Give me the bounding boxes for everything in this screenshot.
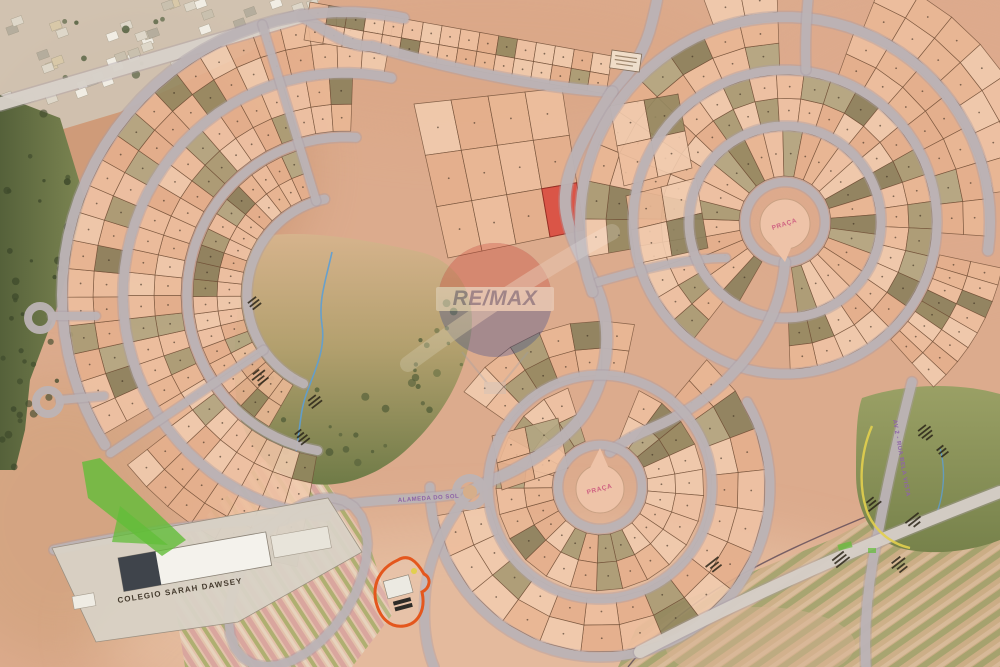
lot-number-mark (966, 317, 968, 319)
lot-number-mark (733, 266, 735, 268)
lot-number-mark (565, 366, 567, 368)
lot-number-mark (789, 86, 791, 88)
lot-number-mark (947, 187, 949, 189)
lot-number-mark (974, 217, 976, 219)
lot-number-mark (153, 111, 155, 113)
lot-number-mark (142, 167, 144, 169)
lot-number-mark (601, 637, 603, 639)
lot-number-mark (970, 182, 972, 184)
lot-number-mark (613, 362, 615, 364)
lot-number-mark (818, 161, 820, 163)
lot-number-mark (922, 90, 924, 92)
lot-number-mark (908, 166, 910, 168)
tree (421, 401, 425, 405)
lot-number-mark (279, 171, 281, 173)
tree (19, 348, 24, 353)
lot-number-mark (984, 272, 986, 274)
lot-number-mark (729, 563, 731, 565)
lot-number-mark (231, 213, 233, 215)
map-canvas: PRAÇA PRAÇA ALAMEDA DO SOL AV 2 - RUA BE… (0, 0, 1000, 667)
tree (382, 405, 390, 413)
lot-number-mark (430, 33, 432, 35)
tree (18, 418, 23, 423)
lot-number-mark (696, 118, 698, 120)
lot-number-mark (465, 58, 467, 60)
lot-number-mark (539, 595, 541, 597)
lot-number-mark (229, 302, 231, 304)
lot-number-mark (243, 50, 245, 52)
tree (11, 406, 17, 412)
lot-number-mark (241, 200, 243, 202)
lot-number-mark (890, 257, 892, 259)
tree (62, 19, 67, 24)
tree (7, 248, 13, 254)
tree (9, 316, 14, 321)
lot-number-mark (82, 255, 84, 257)
lot-number-mark (218, 61, 220, 63)
lot-number-mark (106, 308, 108, 310)
lot-number-mark (733, 415, 735, 417)
lot-number-mark (853, 223, 855, 225)
lot-number-mark (680, 199, 682, 201)
tree (1, 356, 6, 361)
lot-number-mark (173, 92, 175, 94)
lot-number-mark (562, 56, 564, 58)
lot-number-mark (895, 144, 897, 146)
lot-number-mark (233, 262, 235, 264)
lot-number-mark (851, 208, 853, 210)
lot-number-mark (88, 229, 90, 231)
lot-number-mark (300, 60, 302, 62)
lot-number-mark (221, 498, 223, 500)
lot-number-mark (938, 302, 940, 304)
lot-number-mark (732, 63, 734, 65)
lot-number-mark (750, 490, 752, 492)
tree (383, 444, 387, 448)
lot-number-mark (208, 408, 210, 410)
lot-number-mark (605, 547, 607, 549)
lot-number-mark (916, 190, 918, 192)
lot-number-mark (642, 442, 644, 444)
lot-number-mark (661, 594, 663, 596)
lot-number-mark (694, 287, 696, 289)
stamp-annotation-box (609, 50, 641, 72)
lot-number-mark (216, 350, 218, 352)
lot-number-mark (589, 547, 591, 549)
lot-number-mark (643, 408, 645, 410)
lot-number-mark (231, 84, 233, 86)
lot-number-mark (662, 279, 664, 281)
lot-number-mark (563, 633, 565, 635)
lot-number-mark (645, 527, 647, 529)
lot-number-mark (121, 380, 123, 382)
lot-number-mark (675, 301, 677, 303)
lot-number-mark (223, 365, 225, 367)
tree (55, 379, 59, 383)
lot-number-mark (561, 534, 563, 536)
lot-number-mark (764, 87, 766, 89)
lot-number-mark (204, 288, 206, 290)
lot-number-mark (607, 575, 609, 577)
lot-number-mark (760, 33, 762, 35)
lot-number-mark (243, 510, 245, 512)
lot-number-mark (206, 272, 208, 274)
lot-number-mark (928, 369, 930, 371)
lot-number-mark (251, 445, 253, 447)
tree (31, 362, 36, 367)
lot-number-mark (285, 127, 287, 129)
lot-number-mark (569, 607, 571, 609)
lot-number-mark (697, 151, 699, 153)
lot-number-mark (96, 203, 98, 205)
lot-number-mark (589, 362, 591, 364)
lot-number-mark (373, 57, 375, 59)
lot-number-mark (208, 181, 210, 183)
lot-number-mark (543, 434, 545, 436)
lot-number-mark (449, 36, 451, 38)
lot-number-mark (637, 161, 639, 163)
lot-number-mark (847, 194, 849, 196)
tree (426, 406, 433, 413)
lot-number-mark (958, 331, 960, 333)
lot-number-mark (876, 158, 878, 160)
lot-number-mark (341, 117, 343, 119)
lot-number-mark (686, 505, 688, 507)
aerial-masterplan-photo: PRAÇA PRAÇA ALAMEDA DO SOL AV 2 - RUA BE… (0, 0, 1000, 667)
lot-number-mark (113, 235, 115, 237)
tree (418, 338, 422, 342)
tree (45, 394, 52, 401)
lot-number-mark (459, 228, 461, 230)
lot-number-mark (790, 153, 792, 155)
lot-number-mark (718, 241, 720, 243)
lot-number-mark (253, 74, 255, 76)
lot-number-mark (154, 220, 156, 222)
lot-number-mark (688, 482, 690, 484)
lot-number-mark (664, 115, 666, 117)
lot-number-mark (804, 156, 806, 158)
tree (408, 379, 416, 387)
tree (153, 19, 158, 24)
lot-number-mark (146, 467, 148, 469)
yellow-marker-dot (411, 568, 417, 574)
lot-number-mark (882, 86, 884, 88)
lot-number-mark (302, 186, 304, 188)
lot-number-mark (814, 89, 816, 91)
lot-number-mark (504, 405, 506, 407)
lot-number-mark (992, 142, 994, 144)
lot-number-mark (960, 84, 962, 86)
lot-number-mark (725, 6, 727, 8)
lot-number-mark (167, 304, 169, 306)
lot-number-mark (140, 306, 142, 308)
balloon-basket (484, 382, 506, 394)
lot-number-mark (620, 544, 622, 546)
lot-number-mark (578, 79, 580, 81)
lot-number-mark (708, 302, 710, 304)
lot-number-mark (938, 157, 940, 159)
tree (38, 199, 41, 202)
tree (460, 363, 463, 366)
lot-number-mark (510, 118, 512, 120)
tree (416, 384, 421, 389)
lot-number-mark (257, 479, 259, 481)
lot-number-mark (254, 401, 256, 403)
lot-number-mark (923, 325, 925, 327)
lot-number-mark (89, 364, 91, 366)
lot-number-mark (228, 289, 230, 291)
lot-number-mark (244, 353, 246, 355)
lot-number-mark (838, 97, 840, 99)
lot-number-mark (827, 274, 829, 276)
lot-number-mark (918, 240, 920, 242)
lot-number-mark (293, 164, 295, 166)
lot-number-mark (480, 523, 482, 525)
lot-number-mark (237, 250, 239, 252)
lot-number-mark (554, 161, 556, 163)
lot-number-mark (746, 451, 748, 453)
tree (343, 446, 350, 453)
lot-number-mark (163, 389, 165, 391)
lot-number-mark (724, 41, 726, 43)
lot-number-mark (559, 75, 561, 77)
lot-number-mark (303, 122, 305, 124)
lot-number-mark (561, 405, 563, 407)
lot-number-mark (147, 349, 149, 351)
lot-number-mark (949, 344, 951, 346)
tree (25, 400, 32, 407)
lot-number-mark (716, 211, 718, 213)
lot-number-mark (222, 226, 224, 228)
lot-number-mark (541, 72, 543, 74)
tree (11, 464, 18, 471)
tree (21, 312, 25, 316)
lot-number-mark (675, 617, 677, 619)
lot-number-mark (163, 200, 165, 202)
lot-number-mark (322, 118, 324, 120)
lot-number-mark (243, 390, 245, 392)
lot-number-mark (318, 92, 320, 94)
lot-number-mark (190, 112, 192, 114)
lot-number-mark (596, 200, 598, 202)
lot-number-mark (819, 327, 821, 329)
lot-number-mark (525, 49, 527, 51)
lot-number-mark (393, 26, 395, 28)
lot-number-mark (956, 40, 958, 42)
lot-number-mark (186, 504, 188, 506)
lot-number-mark (849, 340, 851, 342)
lot-number-mark (706, 550, 708, 552)
lot-number-mark (855, 70, 857, 72)
lot-number-mark (156, 147, 158, 149)
lot-number-mark (203, 442, 205, 444)
lot-number-mark (881, 276, 883, 278)
lot-number-mark (528, 540, 530, 542)
lot-number-mark (736, 172, 738, 174)
lot-number-mark (919, 215, 921, 217)
tree (371, 450, 374, 453)
lot-number-mark (931, 314, 933, 316)
lot-number-mark (630, 122, 632, 124)
lot-number-mark (210, 97, 212, 99)
lot-number-mark (870, 326, 872, 328)
lot-number-mark (167, 285, 169, 287)
tree (74, 20, 78, 24)
lot-number-mark (221, 422, 223, 424)
lot-number-mark (187, 377, 189, 379)
green-patch-small-2 (868, 548, 876, 553)
tree (13, 298, 17, 302)
lot-number-mark (276, 102, 278, 104)
lot-number-mark (514, 577, 516, 579)
lot-number-mark (775, 153, 777, 155)
lot-number-mark (801, 288, 803, 290)
lot-number-mark (838, 319, 840, 321)
lot-number-mark (585, 574, 587, 576)
lot-number-mark (728, 125, 730, 127)
lot-number-mark (574, 542, 576, 544)
lot-number-mark (937, 59, 939, 61)
lot-number-mark (120, 154, 122, 156)
lot-number-mark (187, 163, 189, 165)
lot-number-mark (173, 248, 175, 250)
lot-number-mark (666, 545, 668, 547)
lot-number-mark (120, 212, 122, 214)
lot-number-mark (179, 230, 181, 232)
lot-number-mark (446, 55, 448, 57)
lot-number-mark (172, 129, 174, 131)
lot-number-mark (581, 60, 583, 62)
lot-number-mark (739, 93, 741, 95)
lot-number-mark (519, 166, 521, 168)
lot-number-mark (600, 63, 602, 65)
lot-number-mark (911, 38, 913, 40)
lot-number-mark (855, 307, 857, 309)
lot-number-mark (195, 76, 197, 78)
tree (30, 259, 33, 262)
lot-number-mark (650, 242, 652, 244)
lot-number-mark (888, 308, 890, 310)
lot-number-mark (265, 179, 267, 181)
lot-number-mark (140, 284, 142, 286)
lot-number-mark (662, 76, 664, 78)
lot-number-mark (230, 315, 232, 317)
lot-number-mark (542, 375, 544, 377)
lot-number-mark (132, 403, 134, 405)
lot-number-mark (493, 222, 495, 224)
lot-number-mark (762, 56, 764, 58)
lot-number-mark (767, 111, 769, 113)
lot-number-mark (169, 323, 171, 325)
lot-number-mark (548, 460, 550, 462)
lot-number-mark (724, 489, 726, 491)
lot-number-mark (684, 460, 686, 462)
lot-number-mark (538, 479, 540, 481)
tree (17, 378, 23, 384)
lot-number-mark (865, 50, 867, 52)
lot-number-mark (870, 293, 872, 295)
lot-number-mark (154, 369, 156, 371)
lot-number-mark (238, 341, 240, 343)
lot-number-mark (237, 121, 239, 123)
lot-number-mark (939, 357, 941, 359)
lot-number-mark (645, 208, 647, 210)
tree (339, 433, 343, 437)
lot-number-mark (720, 457, 722, 459)
lot-number-mark (692, 56, 694, 58)
lot-number-mark (108, 259, 110, 261)
lot-number-mark (114, 357, 116, 359)
lot-number-mark (221, 167, 223, 169)
lot-number-mark (902, 287, 904, 289)
lot-number-mark (788, 110, 790, 112)
tree (326, 448, 334, 456)
lot-number-mark (304, 467, 306, 469)
tree (315, 387, 320, 392)
lot-number-mark (720, 197, 722, 199)
lot-number-mark (474, 122, 476, 124)
watermark-brand-text: RE/MAX (453, 287, 539, 310)
lot-number-mark (298, 493, 300, 495)
tree (281, 417, 286, 422)
lot-number-mark (981, 67, 983, 69)
lot-number-mark (915, 336, 917, 338)
lot-number-mark (927, 16, 929, 18)
lot-number-mark (747, 116, 749, 118)
tree (433, 369, 441, 377)
tree (28, 154, 33, 159)
lot-number-mark (846, 129, 848, 131)
lot-number-mark (251, 143, 253, 145)
lot-number-mark (197, 196, 199, 198)
lot-number-mark (522, 68, 524, 70)
lot-number-mark (895, 237, 897, 239)
lot-number-mark (744, 528, 746, 530)
lot-number-mark (683, 269, 685, 271)
lot-number-mark (107, 178, 109, 180)
lot-number-mark (716, 226, 718, 228)
lot-number-mark (270, 383, 272, 385)
lot-number-mark (165, 487, 167, 489)
lot-number-mark (252, 189, 254, 191)
lot-number-mark (437, 127, 439, 129)
lot-number-mark (295, 34, 297, 36)
lot-number-mark (106, 284, 108, 286)
lot-number-mark (468, 39, 470, 41)
lot-number-mark (838, 264, 840, 266)
tree (5, 431, 13, 439)
tree (17, 412, 23, 418)
lot-number-mark (687, 575, 689, 577)
lot-number-mark (651, 454, 653, 456)
lot-number-mark (716, 104, 718, 106)
lot-number-mark (258, 216, 260, 218)
tree (361, 393, 369, 401)
lot-number-mark (268, 207, 270, 209)
road (806, 0, 808, 70)
lot-number-mark (744, 276, 746, 278)
lot-number-mark (455, 531, 457, 533)
tree (81, 56, 87, 62)
lot-number-mark (629, 570, 631, 572)
lot-number-mark (267, 411, 269, 413)
lot-number-mark (243, 238, 245, 240)
tree (353, 432, 358, 437)
lot-number-mark (135, 131, 137, 133)
lot-number-mark (761, 157, 763, 159)
lot-number-mark (528, 215, 530, 217)
lot-number-mark (503, 65, 505, 67)
